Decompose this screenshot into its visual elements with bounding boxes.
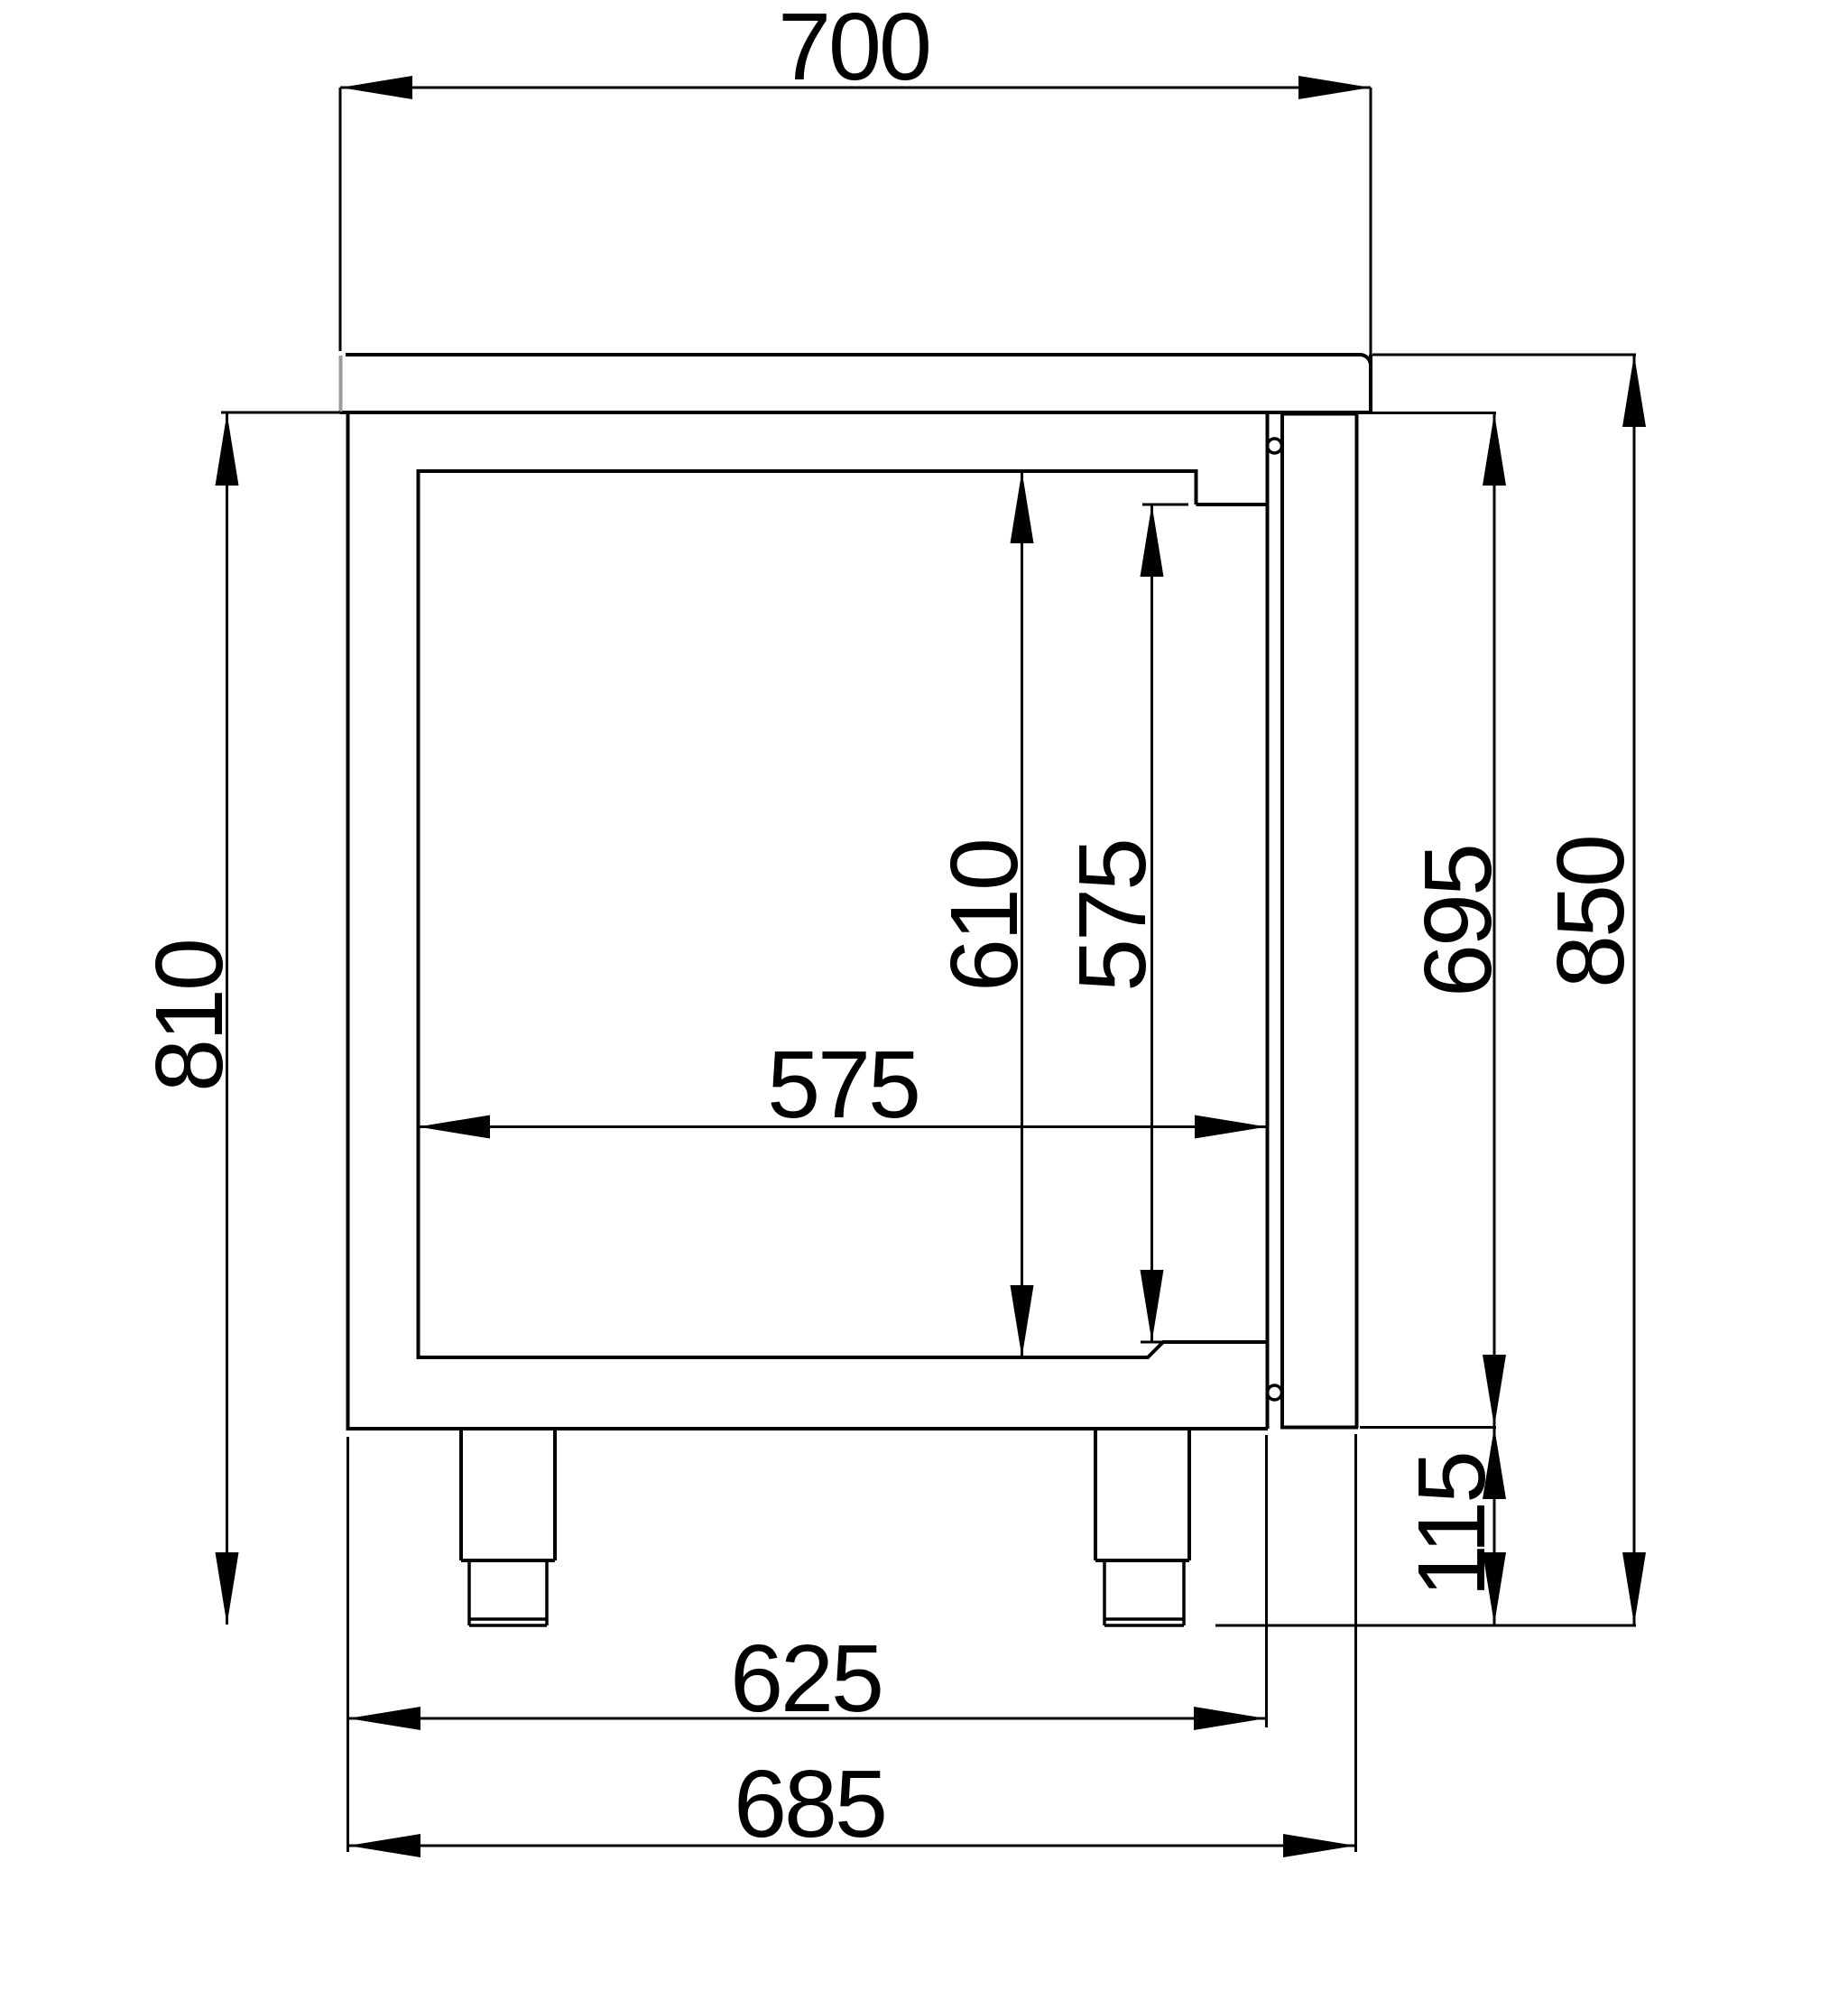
svg-text:575: 575 [1059, 840, 1166, 992]
svg-text:695: 695 [1405, 846, 1511, 997]
svg-text:810: 810 [136, 940, 243, 1092]
svg-text:625: 625 [730, 1625, 882, 1732]
svg-text:850: 850 [1538, 837, 1644, 988]
svg-text:610: 610 [931, 840, 1038, 992]
svg-text:115: 115 [1399, 1453, 1505, 1597]
svg-text:700: 700 [778, 0, 929, 100]
svg-text:685: 685 [734, 1751, 885, 1857]
svg-text:575: 575 [767, 1032, 919, 1138]
